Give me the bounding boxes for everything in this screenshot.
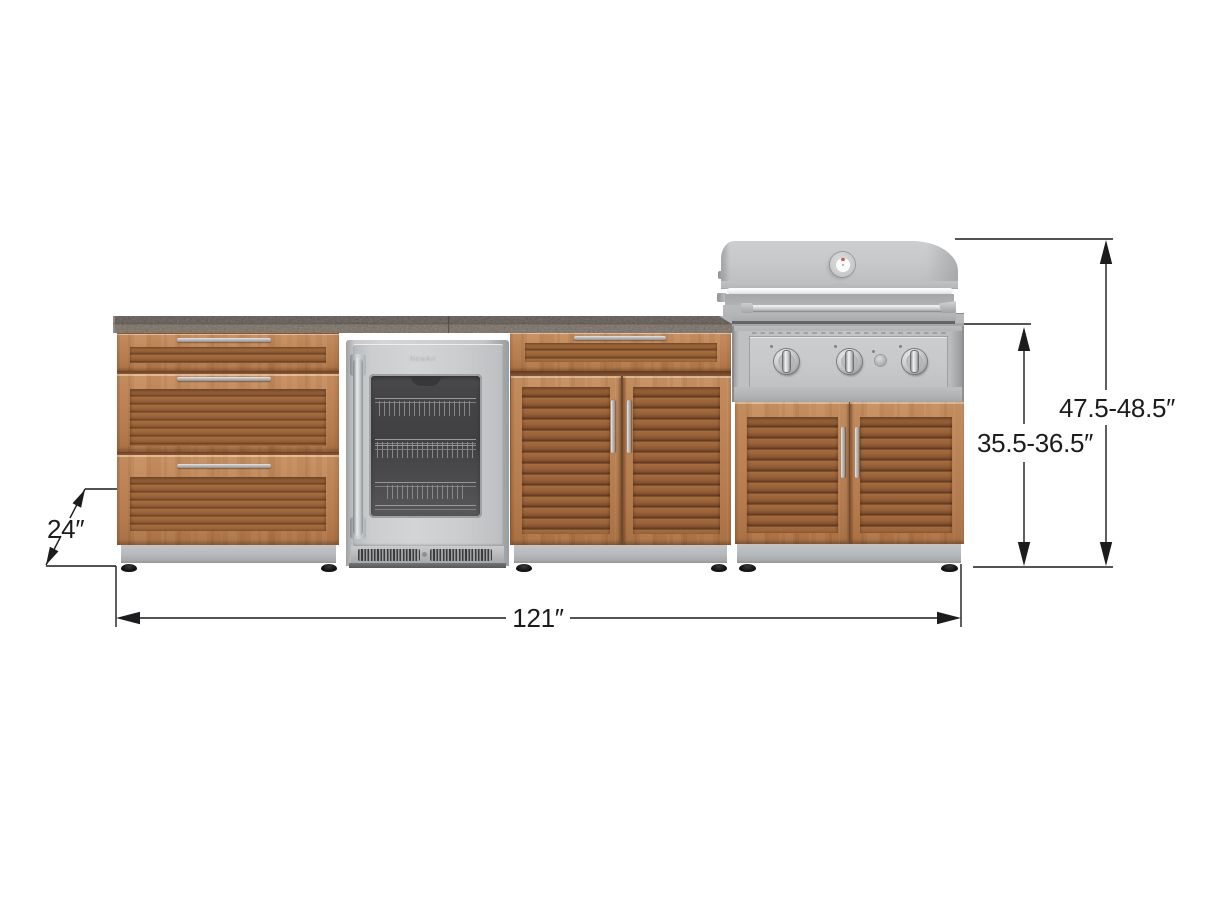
svg-text:24″: 24″ — [47, 514, 84, 544]
svg-text:121″: 121″ — [512, 603, 563, 633]
svg-text:47.5-48.5″: 47.5-48.5″ — [1059, 393, 1175, 423]
svg-text:35.5-36.5″: 35.5-36.5″ — [977, 428, 1093, 458]
